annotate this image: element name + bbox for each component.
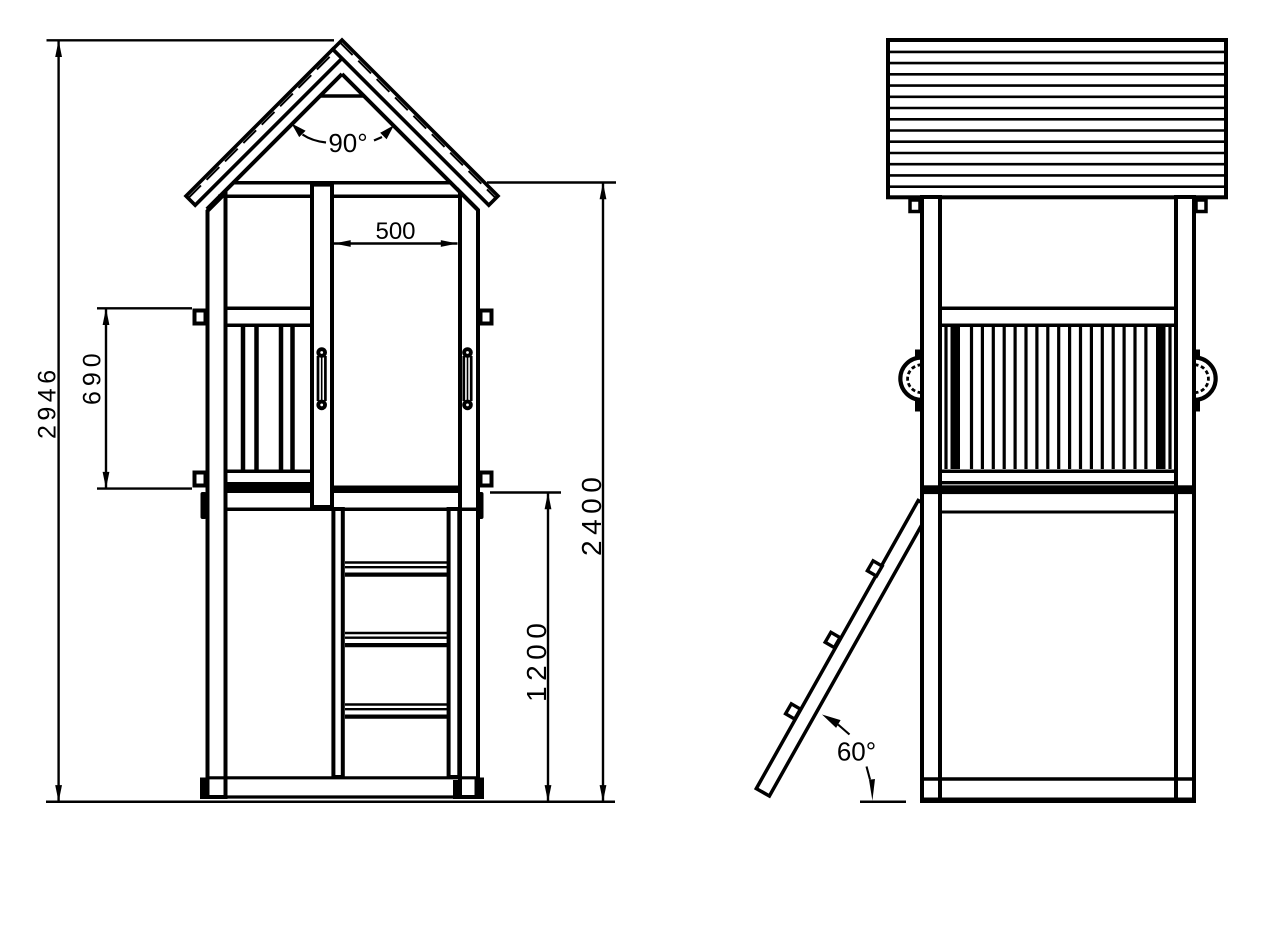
svg-text:690: 690 [79, 348, 107, 405]
svg-text:1200: 1200 [521, 618, 552, 702]
svg-text:60°: 60° [837, 737, 876, 767]
svg-text:2946: 2946 [34, 365, 62, 439]
svg-text:500: 500 [375, 218, 415, 245]
svg-text:2400: 2400 [576, 472, 607, 556]
svg-text:90°: 90° [328, 128, 367, 158]
